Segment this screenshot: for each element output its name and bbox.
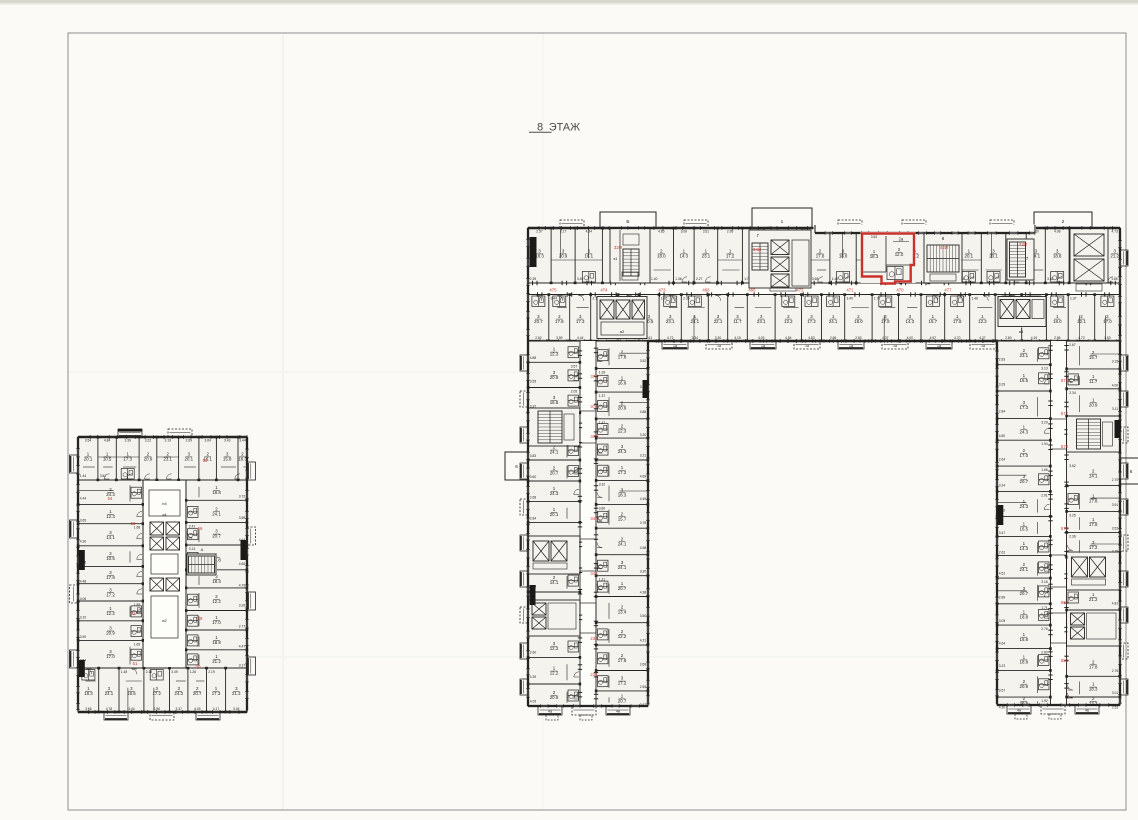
svg-text:4.38: 4.38 [640,591,647,595]
svg-text:17.3: 17.3 [1020,405,1029,410]
svg-text:1.49: 1.49 [832,277,839,281]
svg-text:471: 471 [846,288,854,293]
svg-text:3.57: 3.57 [999,688,1006,692]
svg-text:4.00: 4.00 [907,336,914,340]
svg-text:2.67: 2.67 [1069,343,1076,347]
svg-text:1а: 1а [717,344,721,348]
svg-text:16.1: 16.1 [585,254,594,259]
svg-text:1а: 1а [761,344,765,348]
svg-text:3.43: 3.43 [224,439,231,443]
svg-text:20.7: 20.7 [193,691,202,696]
svg-text:3.44: 3.44 [239,439,246,443]
svg-text:4.65: 4.65 [239,562,246,566]
svg-text:16.8: 16.8 [550,400,559,405]
svg-text:17.2: 17.2 [807,319,816,324]
svg-text:14.3: 14.3 [680,254,689,259]
svg-text:578: 578 [1061,444,1069,449]
svg-text:24.1: 24.1 [1020,567,1029,572]
svg-text:18.3: 18.3 [212,579,221,584]
svg-text:24.1: 24.1 [691,319,700,324]
svg-text:2.62: 2.62 [999,551,1006,555]
svg-text:3.37: 3.37 [175,707,182,711]
svg-text:2.68: 2.68 [530,496,537,500]
svg-text:20.9: 20.9 [618,406,627,411]
svg-text:17.2: 17.2 [106,592,115,597]
svg-text:43И: 43И [1019,242,1027,247]
svg-text:15.7: 15.7 [1089,355,1098,360]
svg-text:18.8: 18.8 [212,490,221,495]
svg-text:1а: 1а [673,344,677,348]
svg-text:1: 1 [781,219,784,225]
svg-text:2.69: 2.69 [186,439,193,443]
svg-text:17.3: 17.3 [212,691,221,696]
svg-text:18.3: 18.3 [535,254,544,259]
svg-text:4.83: 4.83 [808,336,815,340]
svg-text:1.37: 1.37 [1070,297,1077,301]
svg-text:3.17: 3.17 [560,230,567,234]
svg-text:17.8: 17.8 [618,355,627,360]
svg-text:24.3: 24.3 [174,691,183,696]
svg-text:1а: 1а [937,344,941,348]
svg-text:10.5: 10.5 [106,556,115,561]
svg-text:2.19: 2.19 [208,670,215,674]
svg-text:4а: 4а [548,710,552,714]
svg-text:4.00: 4.00 [1112,383,1119,387]
svg-text:18.8: 18.8 [1053,254,1062,259]
svg-text:1а: 1а [849,344,853,348]
svg-text:4.08: 4.08 [1054,230,1061,234]
svg-text:20.1: 20.1 [550,512,559,517]
svg-text:1.26: 1.26 [190,670,197,674]
svg-text:16.5: 16.5 [1020,526,1029,531]
svg-text:18.3: 18.3 [618,492,627,497]
svg-text:2.84: 2.84 [530,516,537,520]
svg-text:4.81: 4.81 [1112,602,1119,606]
svg-text:3.57: 3.57 [571,364,578,368]
svg-text:3.16: 3.16 [1041,580,1048,584]
svg-text:2.77: 2.77 [239,625,246,629]
svg-text:24.1: 24.1 [212,511,221,516]
svg-text:3.20: 3.20 [640,433,647,437]
svg-text:4.30: 4.30 [80,539,87,543]
svg-text:4.17: 4.17 [213,707,220,711]
svg-text:54: 54 [108,496,113,501]
svg-text:1.47: 1.47 [599,421,606,425]
svg-text:20.9: 20.9 [550,375,559,380]
svg-text:3.13: 3.13 [1041,367,1048,371]
svg-text:1.68: 1.68 [134,526,141,530]
svg-text:3.65: 3.65 [812,277,819,281]
svg-text:17.0: 17.0 [106,654,115,659]
svg-text:2.41: 2.41 [189,524,196,528]
svg-text:17.2: 17.2 [1089,545,1098,550]
svg-text:3.59: 3.59 [239,516,246,520]
svg-text:1.85: 1.85 [661,297,668,301]
svg-text:20.7: 20.7 [550,471,559,476]
svg-text:4.79: 4.79 [239,583,246,587]
svg-text:49: 49 [198,616,203,621]
svg-text:23.1: 23.1 [757,319,766,324]
svg-text:17.2: 17.2 [618,470,627,475]
svg-text:23.1: 23.1 [1020,353,1029,358]
svg-text:20.1: 20.1 [965,254,974,259]
svg-text:4а: 4а [1017,709,1021,713]
svg-text:4.84: 4.84 [104,439,111,443]
svg-text:18.0: 18.0 [657,254,666,259]
svg-text:52: 52 [131,611,136,616]
svg-text:56: 56 [198,526,203,531]
svg-text:3.62: 3.62 [1069,464,1076,468]
svg-text:21.2: 21.2 [1089,597,1098,602]
svg-text:577: 577 [1061,411,1069,416]
svg-text:23.1: 23.1 [989,254,998,259]
svg-text:2.86: 2.86 [153,707,160,711]
svg-text:17.8: 17.8 [1089,499,1098,504]
svg-text:12.2: 12.2 [784,319,793,324]
svg-text:17.8: 17.8 [555,319,564,324]
svg-text:4.72: 4.72 [667,336,674,340]
svg-text:3.72: 3.72 [239,495,246,499]
svg-text:2.70: 2.70 [1112,478,1119,482]
svg-text:24.3: 24.3 [618,449,627,454]
svg-text:2.75: 2.75 [1112,669,1119,673]
svg-text:14.1: 14.1 [1089,474,1098,479]
svg-text:4.73: 4.73 [1111,230,1118,234]
svg-text:20.7: 20.7 [618,699,627,704]
svg-text:16.5: 16.5 [127,691,136,696]
svg-text:2.34: 2.34 [1069,391,1076,395]
svg-text:470: 470 [896,288,904,293]
svg-text:3.49: 3.49 [171,670,178,674]
svg-text:16.5: 16.5 [1020,378,1029,383]
svg-text:4.39: 4.39 [530,675,537,679]
svg-text:А: А [201,547,204,552]
svg-text:22.1: 22.1 [1077,319,1086,324]
svg-text:20.1: 20.1 [84,457,93,462]
svg-text:42И: 42И [940,245,948,250]
svg-text:3.39: 3.39 [124,439,131,443]
svg-text:24.3: 24.3 [1020,429,1029,434]
svg-text:4.58: 4.58 [640,546,647,550]
svg-text:3.80: 3.80 [599,506,606,510]
svg-text:2.91: 2.91 [1041,493,1048,497]
svg-text:18.0: 18.0 [1053,319,1062,324]
svg-text:20.9: 20.9 [559,254,568,259]
svg-text:6: 6 [1130,469,1133,474]
svg-text:21.2: 21.2 [212,659,221,664]
svg-text:1.44: 1.44 [80,474,87,478]
svg-text:20.1: 20.1 [185,457,194,462]
svg-text:2.95: 2.95 [727,230,734,234]
svg-text:4.34: 4.34 [586,230,593,234]
svg-text:3.11: 3.11 [1112,407,1118,411]
svg-text:50: 50 [196,664,201,669]
svg-text:2.18: 2.18 [146,670,153,674]
svg-text:Б: Б [626,219,629,225]
svg-text:3.91: 3.91 [1112,503,1119,507]
svg-text:2.36: 2.36 [1069,534,1076,538]
svg-text:14.3: 14.3 [1020,546,1029,551]
svg-text:20.7: 20.7 [618,586,627,591]
svg-text:6: 6 [515,464,518,469]
svg-text:3.60: 3.60 [530,475,537,479]
svg-text:2.05: 2.05 [571,390,578,394]
svg-text:1.66: 1.66 [1041,468,1048,472]
svg-text:3.65: 3.65 [80,519,87,523]
svg-text:3.23: 3.23 [999,664,1006,668]
svg-text:1.92: 1.92 [1041,699,1048,703]
svg-text:2.55: 2.55 [640,685,647,689]
svg-text:4.47: 4.47 [239,644,246,648]
svg-text:1.39: 1.39 [599,370,606,374]
svg-text:1а: 1а [805,344,809,348]
svg-text:18.3: 18.3 [84,691,93,696]
svg-text:575: 575 [1061,378,1069,383]
svg-text:3.54: 3.54 [85,439,92,443]
svg-text:18.3: 18.3 [1089,687,1098,692]
svg-text:14.3: 14.3 [906,319,915,324]
svg-text:1.69: 1.69 [134,642,141,646]
svg-text:580: 580 [1061,600,1069,605]
svg-text:473: 473 [658,288,666,293]
svg-text:474: 474 [600,288,608,293]
svg-text:18.3: 18.3 [870,254,879,259]
svg-text:3.10: 3.10 [80,615,87,619]
svg-text:4.44: 4.44 [577,336,584,340]
svg-text:15.8: 15.8 [223,457,232,462]
svg-text:3.19: 3.19 [164,439,171,443]
svg-text:4.05: 4.05 [530,700,537,704]
svg-text:468: 468 [702,288,710,293]
svg-text:1а: 1а [893,344,897,348]
svg-text:21.2: 21.2 [232,691,241,696]
svg-text:3.26: 3.26 [239,604,246,608]
svg-text:16.8: 16.8 [1020,637,1029,642]
svg-text:3.13: 3.13 [189,547,196,551]
svg-text:2.39: 2.39 [530,277,537,281]
svg-text:3.32: 3.32 [599,482,606,486]
svg-text:17.2: 17.2 [726,254,735,259]
svg-text:3.52: 3.52 [1112,526,1119,530]
svg-text:232: 232 [590,672,598,677]
svg-text:1.37: 1.37 [599,394,606,398]
svg-text:а3: а3 [1019,329,1024,334]
svg-text:12.3: 12.3 [106,514,115,519]
svg-text:н4: н4 [162,501,167,506]
svg-text:4.15: 4.15 [734,336,741,340]
svg-text:346: 346 [590,571,598,576]
svg-text:14.1: 14.1 [106,535,115,540]
svg-text:17.8: 17.8 [618,658,627,663]
svg-text:2.27: 2.27 [696,277,703,281]
svg-text:4.49: 4.49 [640,497,647,501]
svg-text:475: 475 [549,288,557,293]
svg-text:12.3: 12.3 [618,429,627,434]
svg-text:17.0: 17.0 [1103,319,1112,324]
svg-text:12.2: 12.2 [978,319,987,324]
svg-text:53: 53 [131,521,136,526]
svg-text:3.64: 3.64 [204,439,211,443]
svg-text:377: 377 [590,434,598,439]
svg-text:2.60: 2.60 [530,651,537,655]
svg-text:347: 347 [590,516,598,521]
svg-text:477: 477 [944,288,952,293]
svg-text:3.83: 3.83 [530,454,537,458]
svg-text:3.01: 3.01 [1112,691,1119,695]
svg-text:2.69: 2.69 [640,662,647,666]
svg-text:18.3: 18.3 [238,457,247,462]
svg-text:3.24: 3.24 [999,483,1006,487]
svg-text:3.90: 3.90 [80,635,87,639]
svg-text:4.85: 4.85 [658,230,665,234]
svg-text:2.76: 2.76 [1041,627,1048,631]
svg-text:24.1: 24.1 [105,691,114,696]
svg-text:3.40: 3.40 [846,297,853,301]
svg-text:24.1: 24.1 [618,541,627,546]
svg-text:582: 582 [1061,658,1069,663]
svg-text:11.7: 11.7 [1089,379,1098,384]
svg-text:32И: 32И [614,245,622,250]
svg-text:4в: 4в [616,710,620,714]
svg-text:2.80: 2.80 [855,336,862,340]
svg-text:4.69: 4.69 [640,475,647,479]
svg-text:3.52: 3.52 [640,359,647,363]
svg-text:3.51: 3.51 [703,230,710,234]
svg-text:12.3: 12.3 [550,352,559,357]
svg-text:17.2: 17.2 [618,681,627,686]
svg-text:12.2: 12.2 [550,646,559,651]
svg-text:12.2: 12.2 [550,671,559,676]
svg-text:20.7: 20.7 [212,534,221,539]
svg-text:24.1: 24.1 [618,565,627,570]
svg-text:4в: 4в [1085,709,1089,713]
svg-text:14.1: 14.1 [550,580,559,585]
svg-text:17.8: 17.8 [881,319,890,324]
svg-text:20.9: 20.9 [144,457,153,462]
svg-text:4.78: 4.78 [106,707,113,711]
svg-text:2.60: 2.60 [535,336,542,340]
svg-text:2.84: 2.84 [999,409,1006,413]
svg-text:4.44: 4.44 [80,497,87,501]
svg-text:2.39: 2.39 [683,297,690,301]
svg-text:34И: 34И [753,247,761,252]
svg-text:1.85: 1.85 [134,603,141,607]
svg-text:17.0: 17.0 [212,620,221,625]
svg-text:в2: в2 [162,618,167,623]
svg-text:18.0: 18.0 [854,319,863,324]
svg-text:1.40: 1.40 [651,277,658,281]
svg-text:12.2: 12.2 [212,599,221,604]
svg-text:17.8: 17.8 [1089,522,1098,527]
svg-text:2.80: 2.80 [1041,651,1048,655]
svg-text:15.7: 15.7 [618,516,627,521]
svg-text:2.83: 2.83 [999,357,1006,361]
svg-text:в1: в1 [614,257,618,261]
svg-text:24.3: 24.3 [1020,504,1029,509]
svg-text:20.9: 20.9 [106,631,115,636]
svg-text:17.8: 17.8 [953,319,962,324]
svg-text:18.0: 18.0 [839,254,848,259]
svg-text:3.21: 3.21 [640,454,647,458]
svg-text:20.9: 20.9 [1020,684,1029,689]
svg-text:4.88: 4.88 [640,410,647,414]
svg-text:20.9: 20.9 [1089,402,1098,407]
svg-text:3.29: 3.29 [999,382,1006,386]
svg-text:4.70: 4.70 [954,336,961,340]
svg-text:3.15: 3.15 [1112,360,1119,364]
svg-text:3.05: 3.05 [999,619,1006,623]
svg-text:3.34: 3.34 [692,336,699,340]
svg-text:1.48: 1.48 [121,670,128,674]
svg-text:3.50: 3.50 [640,614,647,618]
svg-text:51: 51 [133,661,138,666]
svg-text:4.51: 4.51 [999,571,1006,575]
svg-text:3.30: 3.30 [715,336,722,340]
svg-text:16.8: 16.8 [618,380,627,385]
svg-text:3.78: 3.78 [640,521,647,525]
svg-text:23.1: 23.1 [702,254,711,259]
svg-text:3.22: 3.22 [145,439,152,443]
svg-text:579: 579 [1061,526,1069,531]
svg-text:ЭТАЖ: ЭТАЖ [549,122,580,134]
svg-text:4.88: 4.88 [530,356,537,360]
svg-text:17.0: 17.0 [1020,453,1029,458]
svg-text:230: 230 [590,636,598,641]
svg-text:4.48: 4.48 [80,580,87,584]
svg-text:4.21: 4.21 [640,638,647,642]
svg-text:1а: 1а [981,344,985,348]
svg-text:1.94: 1.94 [1041,442,1048,446]
svg-text:11.7: 11.7 [733,319,742,324]
svg-text:20.7: 20.7 [1020,591,1029,596]
svg-text:12.2: 12.2 [106,611,115,616]
svg-text:20.7: 20.7 [1020,479,1029,484]
svg-text:3.25: 3.25 [1069,513,1076,517]
svg-text:3.47: 3.47 [999,531,1006,535]
svg-text:3.44: 3.44 [551,297,558,301]
svg-text:15.7: 15.7 [929,319,938,324]
svg-text:24.1: 24.1 [829,319,838,324]
svg-text:22.1: 22.1 [714,319,723,324]
svg-text:2.64: 2.64 [999,458,1006,462]
svg-text:3.55: 3.55 [530,379,537,383]
svg-text:17.8: 17.8 [816,254,825,259]
svg-text:17.3: 17.3 [576,319,585,324]
svg-text:2а: 2а [899,237,904,242]
svg-text:24.3: 24.3 [550,491,559,496]
svg-text:2.80: 2.80 [1005,336,1012,340]
svg-text:1.72: 1.72 [874,297,881,301]
svg-text:8: 8 [537,122,543,134]
svg-text:3.09: 3.09 [681,230,688,234]
svg-text:18.8: 18.8 [1020,614,1029,619]
svg-text:21.2: 21.2 [1110,254,1119,259]
svg-text:12.0: 12.0 [895,252,904,257]
svg-text:13.4: 13.4 [618,610,627,615]
svg-text:4.80: 4.80 [999,434,1006,438]
svg-text:18.8: 18.8 [1020,660,1029,665]
svg-text:23.1: 23.1 [666,319,675,324]
svg-text:18.8: 18.8 [212,640,221,645]
svg-text:55: 55 [203,458,208,463]
svg-text:4.57: 4.57 [930,336,937,340]
svg-text:4.64: 4.64 [999,641,1006,645]
svg-text:а2: а2 [620,329,625,334]
svg-text:1.46: 1.46 [971,297,978,301]
svg-text:3.59: 3.59 [556,336,563,340]
svg-text:3.29: 3.29 [1041,421,1048,425]
svg-text:2: 2 [1062,219,1065,225]
